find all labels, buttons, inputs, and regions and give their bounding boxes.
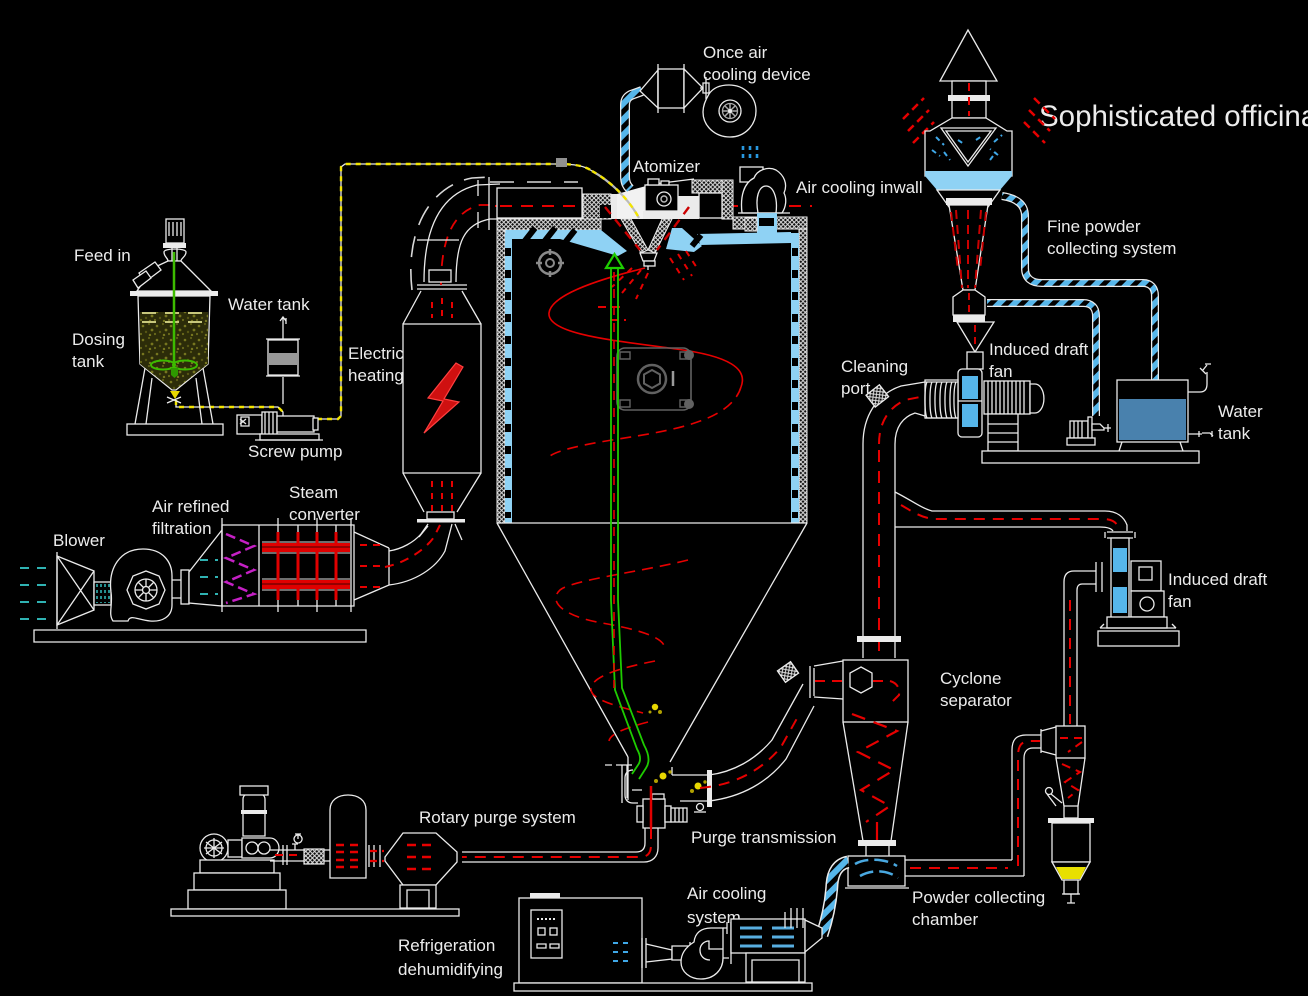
- svg-text:Sophisticated officina: Sophisticated officina: [1039, 100, 1308, 133]
- svg-text:converter: converter: [289, 505, 360, 524]
- svg-text:Water: Water: [1218, 402, 1263, 421]
- svg-text:fan: fan: [989, 362, 1013, 381]
- svg-text:Powder collecting: Powder collecting: [912, 888, 1045, 907]
- svg-text:Air cooling inwall: Air cooling inwall: [796, 178, 923, 197]
- svg-text:chamber: chamber: [912, 910, 978, 929]
- svg-text:Atomizer: Atomizer: [633, 157, 700, 176]
- svg-text:Dosing: Dosing: [72, 330, 125, 349]
- svg-text:Screw pump: Screw pump: [248, 442, 342, 461]
- svg-text:Purge transmission: Purge transmission: [691, 828, 837, 847]
- svg-text:fan: fan: [1168, 592, 1192, 611]
- svg-text:dehumidifying: dehumidifying: [398, 960, 503, 979]
- svg-text:Once air: Once air: [703, 43, 768, 62]
- svg-text:Refrigeration: Refrigeration: [398, 936, 495, 955]
- svg-text:Cleaning: Cleaning: [841, 357, 908, 376]
- svg-text:Air cooling: Air cooling: [687, 884, 766, 903]
- svg-text:Air refined: Air refined: [152, 497, 229, 516]
- svg-text:Fine powder: Fine powder: [1047, 217, 1141, 236]
- svg-text:collecting system: collecting system: [1047, 239, 1176, 258]
- svg-text:tank: tank: [72, 352, 105, 371]
- svg-text:Rotary purge system: Rotary purge system: [419, 808, 576, 827]
- svg-text:Blower: Blower: [53, 531, 105, 550]
- svg-text:Feed in: Feed in: [74, 246, 131, 265]
- svg-text:Induced draft: Induced draft: [989, 340, 1089, 359]
- svg-text:separator: separator: [940, 691, 1012, 710]
- svg-text:Induced draft: Induced draft: [1168, 570, 1268, 589]
- svg-text:cooling device: cooling device: [703, 65, 811, 84]
- svg-text:filtration: filtration: [152, 519, 212, 538]
- svg-text:Cyclone: Cyclone: [940, 669, 1001, 688]
- svg-text:Steam: Steam: [289, 483, 338, 502]
- svg-text:Water tank: Water tank: [228, 295, 310, 314]
- svg-text:heating: heating: [348, 366, 404, 385]
- svg-text:tank: tank: [1218, 424, 1251, 443]
